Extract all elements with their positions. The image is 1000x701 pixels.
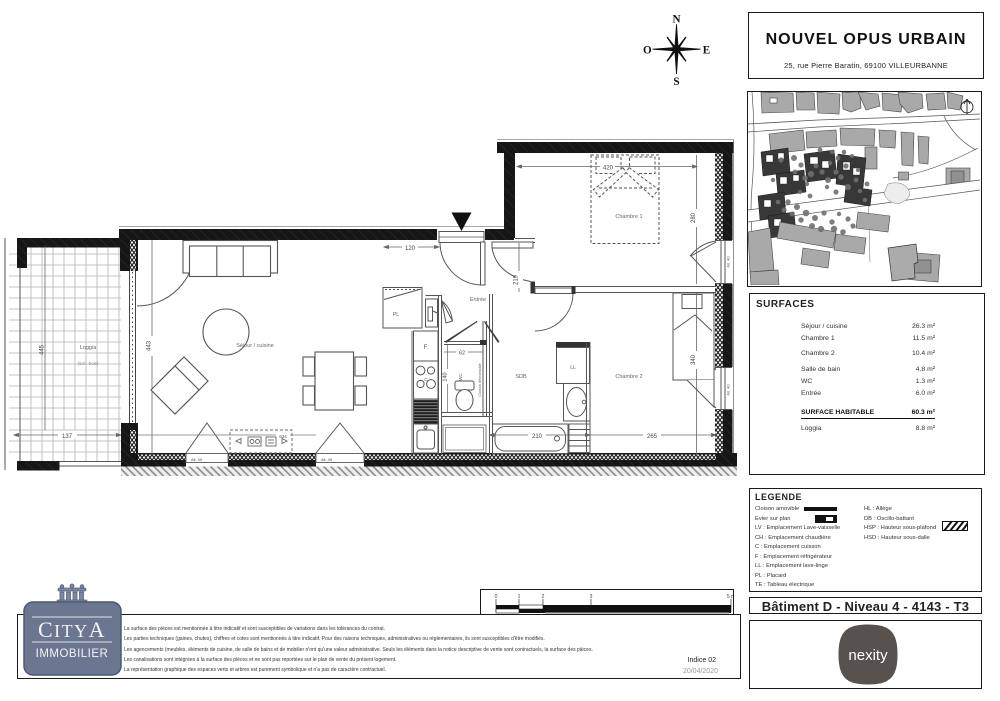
svg-text:Loggia: Loggia [80,345,97,351]
svg-text:0: 0 [495,594,498,600]
svg-text:E: E [703,44,710,56]
svg-text:2: 2 [542,594,545,600]
svg-text:140: 140 [443,372,449,381]
svg-text:Entrée: Entrée [470,297,486,303]
svg-text:634: 634 [279,434,287,439]
svg-text:All. 40: All. 40 [726,256,731,268]
svg-text:F: F [424,345,428,351]
svg-text:1: 1 [518,594,521,600]
svg-text:420: 420 [603,166,614,172]
svg-text:210: 210 [532,434,543,440]
svg-text:219: 219 [514,274,520,285]
svg-text:CITYA: CITYA [38,617,106,642]
svg-text:WC: WC [458,373,463,381]
svg-text:340: 340 [691,354,697,365]
svg-text:IMMOBILIER: IMMOBILIER [36,648,109,660]
svg-text:SDB: SDB [515,374,527,380]
svg-text:(sol : bois): (sol : bois) [78,361,99,366]
svg-text:443: 443 [147,340,153,351]
svg-text:Séjour / cuisine: Séjour / cuisine [236,343,274,349]
svg-text:445: 445 [40,344,46,355]
svg-text:120: 120 [405,246,416,252]
svg-text:LL: LL [570,365,576,371]
svg-text:Chambre 2: Chambre 2 [615,374,642,380]
svg-text:PL: PL [393,312,400,318]
svg-text:N: N [672,14,680,26]
svg-text:137: 137 [62,434,73,440]
svg-text:Chambre 1: Chambre 1 [615,214,642,220]
svg-text:265: 265 [647,434,658,440]
svg-text:O: O [643,44,652,56]
svg-text:Cloison démontable: Cloison démontable [478,363,482,397]
svg-text:5 m: 5 m [727,594,733,600]
svg-text:S: S [673,76,679,86]
svg-text:3: 3 [590,594,593,600]
svg-text:62: 62 [459,351,465,357]
svg-text:280: 280 [691,212,697,223]
svg-text:nexity: nexity [848,647,888,664]
svg-text:All. 40: All. 40 [191,457,203,462]
svg-text:All. 40: All. 40 [321,457,333,462]
svg-text:All. 40: All. 40 [726,384,731,396]
